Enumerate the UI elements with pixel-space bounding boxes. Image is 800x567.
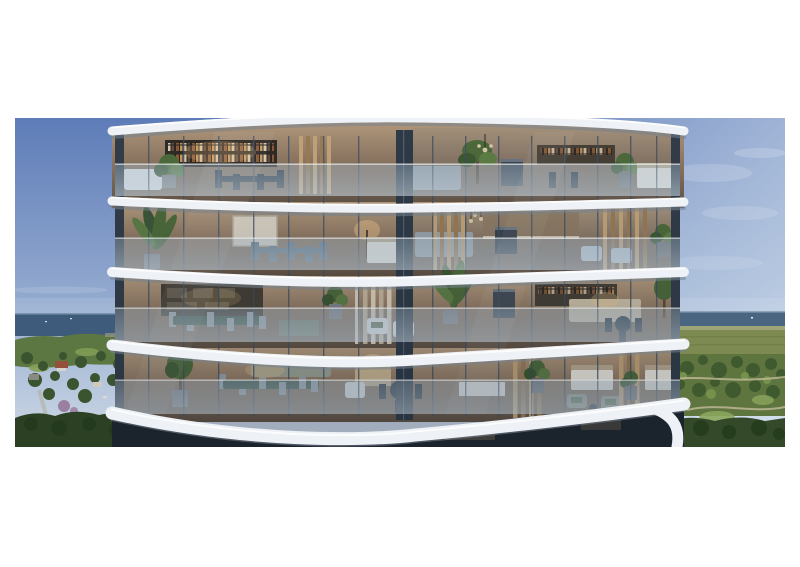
field-texture (665, 336, 785, 338)
boat (45, 321, 47, 322)
house-wall (57, 368, 66, 371)
horizon-right (665, 311, 785, 313)
page-background (0, 0, 800, 567)
boat (70, 318, 72, 319)
light-house (93, 382, 102, 387)
glade (752, 395, 774, 405)
sailboat (751, 317, 753, 319)
grey-house (29, 374, 39, 380)
architectural-rendering-photo (15, 118, 785, 447)
purple-flowering-tree (58, 400, 70, 412)
building (112, 118, 684, 447)
scene-svg (15, 118, 785, 447)
ocean-right (665, 311, 785, 326)
red-roof-house (55, 361, 68, 368)
lawn (75, 348, 99, 356)
vehicle (103, 396, 107, 399)
